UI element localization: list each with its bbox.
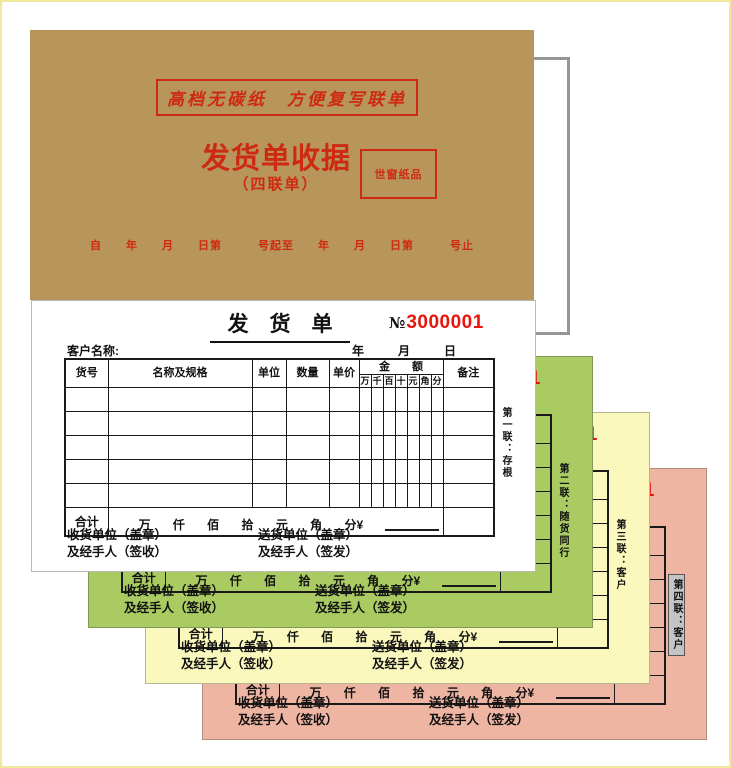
digit-yuan: 元 bbox=[407, 375, 419, 388]
cover-date-line: 自 年 月 日第 号起至 年 月 日第 号止 bbox=[30, 237, 534, 253]
items-table: 货号 名称及规格 单位 数量 单价 金 额 备注 万 千 百 十 元 角 分 bbox=[64, 358, 495, 537]
digit-jiao: 角 bbox=[419, 375, 431, 388]
copy-number-label: 第二联：随货同行 bbox=[555, 463, 570, 559]
digit-fen: 分 bbox=[431, 375, 443, 388]
sender-signature-block: 送货单位（盖章） 及经手人（签发） bbox=[429, 695, 529, 729]
total-amount-blank bbox=[556, 687, 610, 699]
serial-number: 3000001 bbox=[406, 312, 483, 334]
sender-signature-block: 送货单位（盖章） 及经手人（签发） bbox=[315, 583, 415, 617]
col-unit-price: 单价 bbox=[329, 359, 359, 388]
month-label: 月 bbox=[398, 342, 410, 359]
receiver-signature-block: 收货单位（盖章） 及经手人（签收） bbox=[67, 527, 167, 561]
cover: 高档无碳纸 方便复写联单 发货单收据 （四联单） 世窗纸品 自 年 月 日第 号… bbox=[30, 30, 534, 300]
year-label: 年 bbox=[352, 342, 364, 359]
cover-slogan: 高档无碳纸 方便复写联单 bbox=[156, 79, 418, 116]
blank-item-row bbox=[65, 460, 494, 484]
customer-name-label: 客户名称: bbox=[67, 342, 119, 359]
digit-qian: 千 bbox=[371, 375, 383, 388]
col-name-spec: 名称及规格 bbox=[108, 359, 252, 388]
form-sheet-1: 发 货 单 № 3000001 客户名称: 年 月 日 货号 名称及规格 bbox=[31, 300, 536, 572]
blank-item-row bbox=[65, 412, 494, 436]
total-amount-blank bbox=[442, 575, 496, 587]
date-fields: 年 月 日 bbox=[352, 342, 456, 359]
blank-item-row bbox=[65, 436, 494, 460]
digit-wan: 万 bbox=[359, 375, 371, 388]
receiver-signature-block: 收货单位（盖章） 及经手人（签收） bbox=[181, 639, 281, 673]
day-label: 日 bbox=[444, 342, 456, 359]
col-item-no: 货号 bbox=[65, 359, 108, 388]
total-remarks-cell bbox=[443, 508, 494, 537]
sender-signature-block: 送货单位（盖章） 及经手人（签发） bbox=[372, 639, 472, 673]
copy-number-label: 第一联：存根 bbox=[498, 407, 513, 479]
col-qty: 数量 bbox=[286, 359, 329, 388]
copy-number-label: 第四联：客户 bbox=[669, 575, 684, 655]
copy-number-label: 第三联：客户 bbox=[612, 519, 627, 591]
serial: № 3000001 bbox=[389, 312, 484, 334]
serial-prefix: № bbox=[389, 314, 405, 332]
col-amount: 金 额 bbox=[359, 359, 443, 375]
product-photo: 高档无碳纸 方便复写联单 发货单收据 （四联单） 世窗纸品 自 年 月 日第 号… bbox=[0, 0, 731, 768]
blank-item-row bbox=[65, 388, 494, 412]
sender-signature-block: 送货单位（盖章） 及经手人（签发） bbox=[258, 527, 358, 561]
col-unit: 单位 bbox=[252, 359, 286, 388]
blank-item-row bbox=[65, 484, 494, 508]
form-title: 发 货 单 bbox=[210, 308, 350, 343]
receiver-signature-block: 收货单位（盖章） 及经手人（签收） bbox=[124, 583, 224, 617]
col-remarks: 备注 bbox=[443, 359, 494, 388]
total-amount-blank bbox=[499, 631, 553, 643]
receiver-signature-block: 收货单位（盖章） 及经手人（签收） bbox=[238, 695, 338, 729]
digit-bai: 百 bbox=[383, 375, 395, 388]
digit-shi: 十 bbox=[395, 375, 407, 388]
cover-brand-stamp: 世窗纸品 bbox=[360, 149, 437, 199]
total-amount-blank bbox=[385, 519, 439, 531]
